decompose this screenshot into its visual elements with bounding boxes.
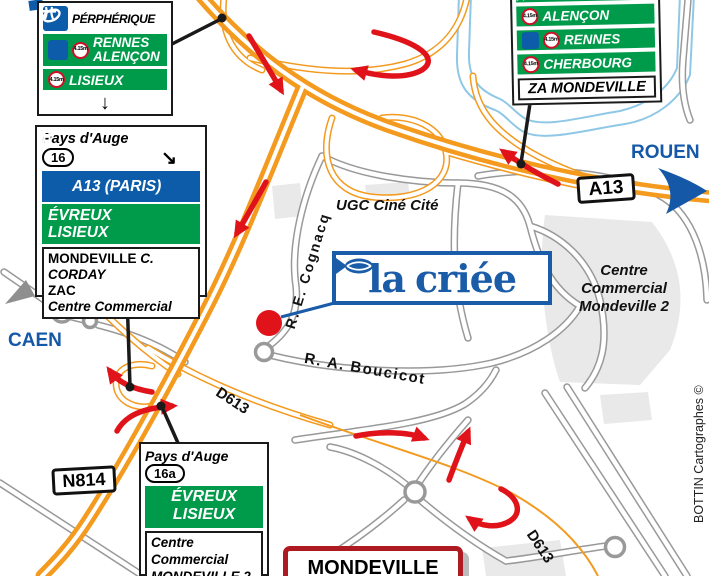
dest-rennes: RENNES [93, 36, 160, 50]
map-credit: BOTTIN Cartographes © [692, 385, 706, 523]
label-ugc: UGC Ciné Cité [336, 197, 439, 214]
sign-centre-commercial: Centre Commercial MONDEVILLE 2 ↓ [145, 531, 263, 576]
height-limit-badge: 4.15m [72, 42, 89, 59]
sign-panel-exit16: Pays d'Auge 16 ↘ A13 (PARIS) ÉVREUX LISI… [35, 125, 207, 297]
label-caen: CAEN [8, 330, 62, 352]
down-arrow-icon: ↓ [43, 93, 167, 113]
motorway-icon [48, 40, 68, 60]
sign-lisieux: 4.15m LISIEUX [43, 69, 167, 90]
local-zac: ZAC [48, 283, 194, 299]
height-limit-badge: 4.15m [522, 55, 539, 72]
height-limit-badge: 4.15m [48, 71, 65, 88]
dest-lisieux: LISIEUX [147, 506, 261, 524]
logo-word-criee: criée [415, 256, 516, 301]
motorway-icon [47, 177, 67, 197]
sign-cherbourg: 4.15m CHERBOURG [517, 52, 655, 75]
peripherique-row: PÉRPHÉRIQUE [43, 6, 167, 31]
cc-mondeville2: MONDEVILLE 2 [151, 569, 251, 576]
exit-number-badge: 16 [42, 148, 74, 167]
sign-za-mondeville: ZA MONDEVILLE [518, 76, 656, 101]
sign-rennes-alencon: 4.15m RENNES ALENÇON [43, 34, 167, 66]
road-label-n814: N814 [51, 465, 116, 495]
cc-line2: MONDEVILLE 2 ↓ [151, 569, 257, 576]
sign-panel-za-mondeville: 4.15m ALENÇON 4.15m RENNES 4.15m CHERBOU… [510, 0, 663, 106]
sign-mondeville-local: MONDEVILLE C. CORDAY ZAC Centre Commerci… [42, 247, 200, 319]
label-rouen: ROUEN [631, 142, 700, 164]
dest-lisieux: LISIEUX [48, 224, 194, 241]
dest-lisieux: LISIEUX [69, 72, 123, 88]
dest-evreux: ÉVREUX [48, 207, 194, 224]
exit-area-label: Pays d'Auge [145, 448, 263, 464]
road-map: PÉRPHÉRIQUE 4.15m RENNES ALENÇON 4.15m L… [0, 0, 709, 576]
sign-evreux-lisieux: ÉVREUX LISIEUX [145, 486, 263, 528]
label-centre-commercial-mondeville2: Centre Commercial Mondeville 2 [553, 262, 695, 316]
height-limit-badge: 4.15m [521, 7, 538, 24]
local-line1: MONDEVILLE C. CORDAY [48, 251, 194, 283]
sign-cut-row [516, 0, 654, 2]
town-sign-mondeville: MONDEVILLE [283, 546, 463, 576]
dest-alencon: ALENÇON [93, 50, 160, 64]
dest-alencon: ALENÇON [542, 7, 609, 23]
dest-evreux: ÉVREUX [147, 488, 261, 506]
dest-cherbourg: CHERBOURG [543, 55, 632, 72]
exit-number-badge: 16a [145, 464, 185, 483]
cc-line1: Centre Commercial [151, 535, 257, 569]
peripherique-label: PÉRPHÉRIQUE [72, 12, 155, 26]
motorway-icon [522, 31, 539, 48]
sign-panel-peripherique: PÉRPHÉRIQUE 4.15m RENNES ALENÇON 4.15m L… [37, 1, 173, 116]
la-criee-logo: la criée [332, 251, 552, 305]
sign-a13-paris: A13 (PARIS) [42, 171, 200, 202]
cc-m2-line3: Mondeville 2 [553, 298, 695, 316]
dest-a13-paris: A13 (PARIS) [72, 178, 161, 196]
local-centre-commercial: Centre Commercial [48, 299, 194, 315]
road-label-a13: A13 [576, 173, 636, 204]
diagonal-arrow-icon: ↘ [161, 149, 177, 168]
exit-area-label: Pays d'Auge [42, 131, 200, 147]
building-footprints [272, 182, 680, 576]
destinations: RENNES ALENÇON [93, 36, 160, 64]
sign-evreux-lisieux: ÉVREUX LISIEUX [42, 204, 200, 244]
dest-rennes: RENNES [564, 31, 621, 47]
height-limit-badge: 4.15m [543, 31, 560, 48]
cc-m2-line1: Centre [553, 262, 695, 280]
cc-m2-line2: Commercial [553, 280, 695, 298]
local-mondeville: MONDEVILLE [48, 251, 137, 266]
sign-rennes: 4.15m RENNES [517, 28, 655, 51]
sign-panel-exit16a: Pays d'Auge 16a ÉVREUX LISIEUX Centre Co… [139, 442, 269, 576]
sign-alencon: 4.15m ALENÇON [516, 4, 654, 27]
location-marker-dot [256, 310, 282, 336]
